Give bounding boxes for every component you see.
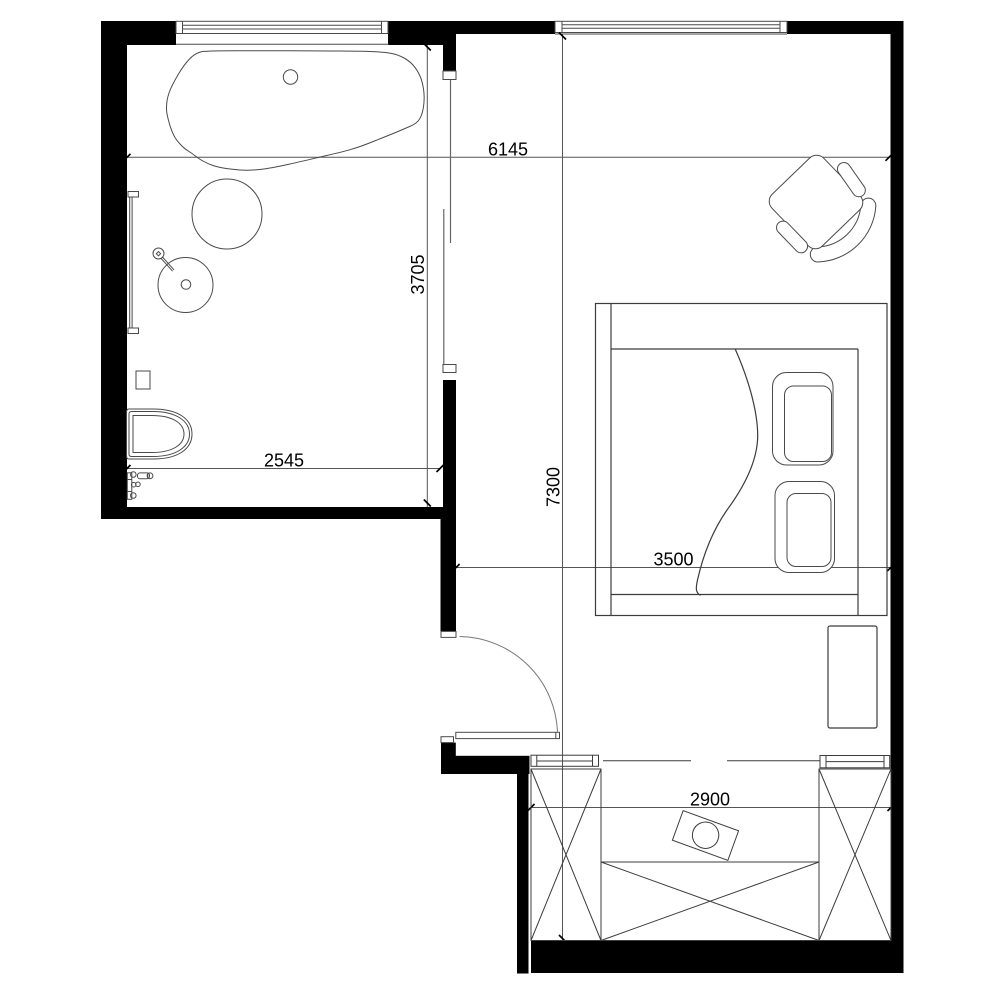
svg-text:6145: 6145: [488, 140, 528, 160]
svg-text:7300: 7300: [544, 467, 564, 507]
svg-text:2900: 2900: [690, 790, 730, 810]
svg-text:2545: 2545: [264, 451, 304, 471]
svg-text:3500: 3500: [653, 550, 693, 570]
svg-text:3705: 3705: [408, 254, 428, 294]
